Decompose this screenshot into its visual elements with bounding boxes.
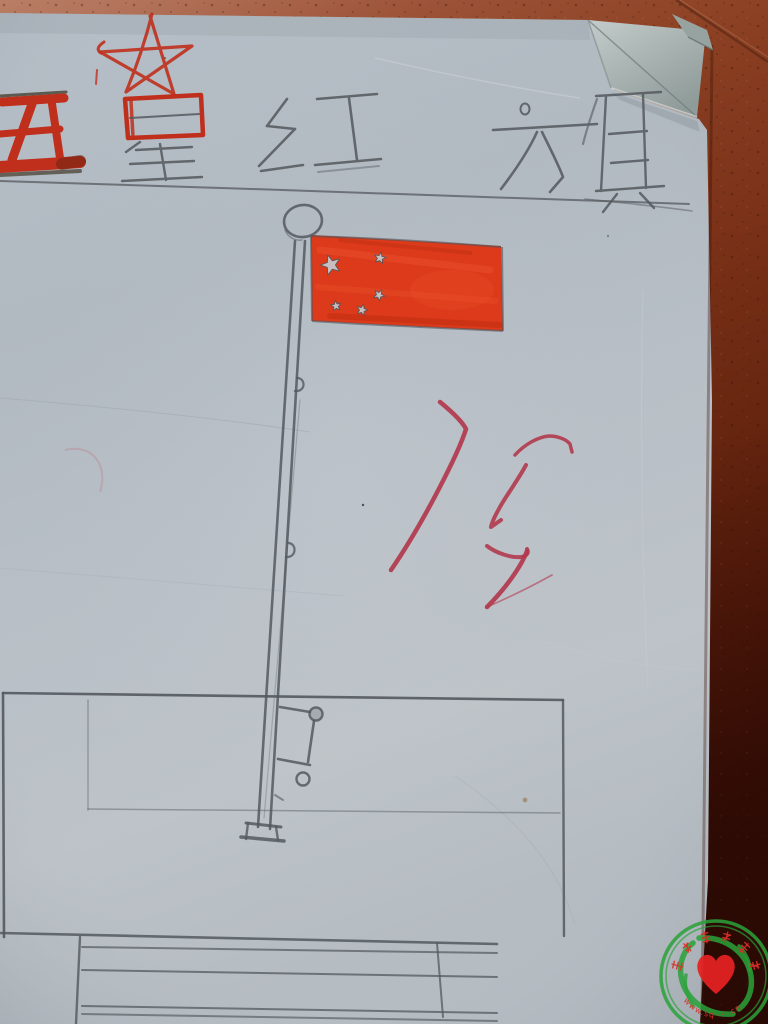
platform-right-edge	[563, 700, 564, 936]
flag-drawing	[311, 235, 503, 331]
winch-pulley-top	[310, 708, 323, 721]
star-doodle-drip	[96, 70, 97, 84]
platform-left-edge	[3, 693, 4, 937]
paper-sheet	[0, 13, 712, 1024]
photo-svg: www.sq····.cn	[0, 0, 768, 1024]
photo-stage: www.sq····.cn 五星红旗 red cursive teacher m…	[0, 0, 768, 1024]
